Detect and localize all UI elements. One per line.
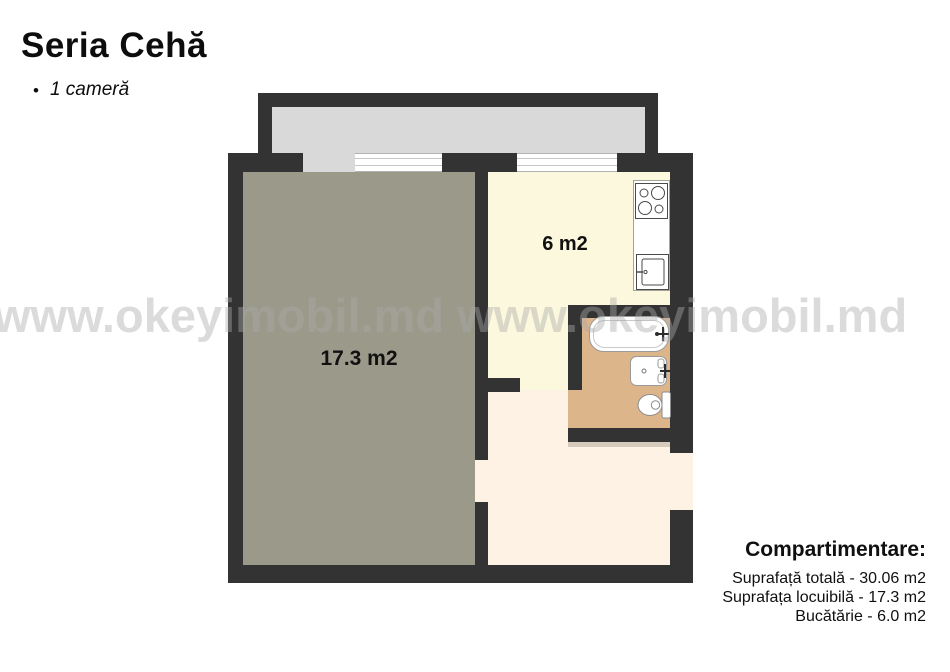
bathroom-left-wall xyxy=(568,305,582,390)
toilet-icon xyxy=(637,390,671,420)
living-room-door-opening xyxy=(475,460,488,502)
bathroom-door-opening xyxy=(568,390,582,428)
bathtub-icon xyxy=(589,316,669,352)
kitchen-area-label: 6 m2 xyxy=(500,233,630,256)
living-room-area-label: 17.3 m2 xyxy=(243,347,475,371)
hallway-stub-wall xyxy=(488,378,520,392)
wall-shadow xyxy=(568,442,670,447)
bathroom-bottom-wall xyxy=(568,428,670,442)
bullet-icon: • xyxy=(33,82,39,99)
apartment-type: • 1 cameră xyxy=(33,79,129,101)
kitchen-window xyxy=(517,153,617,172)
apartment-type-label: 1 cameră xyxy=(50,79,129,101)
balcony-floor xyxy=(272,107,645,153)
kitchen-sink-icon xyxy=(636,254,669,290)
legend-living-area: Suprafața locuibilă - 17.3 m2 xyxy=(722,588,926,607)
compartment-legend: Compartimentare: Suprafață totală - 30.0… xyxy=(722,538,926,626)
legend-total-area: Suprafață totală - 30.06 m2 xyxy=(722,569,926,588)
legend-title: Compartimentare: xyxy=(722,538,926,562)
stove-icon xyxy=(635,183,668,219)
entry-door-opening xyxy=(670,453,693,510)
balcony-door-opening xyxy=(303,153,355,172)
page-title: Seria Cehă xyxy=(21,26,207,66)
legend-kitchen-area: Bucătărie - 6.0 m2 xyxy=(722,607,926,626)
washbasin-icon xyxy=(630,356,670,386)
living-room-window xyxy=(355,153,442,172)
